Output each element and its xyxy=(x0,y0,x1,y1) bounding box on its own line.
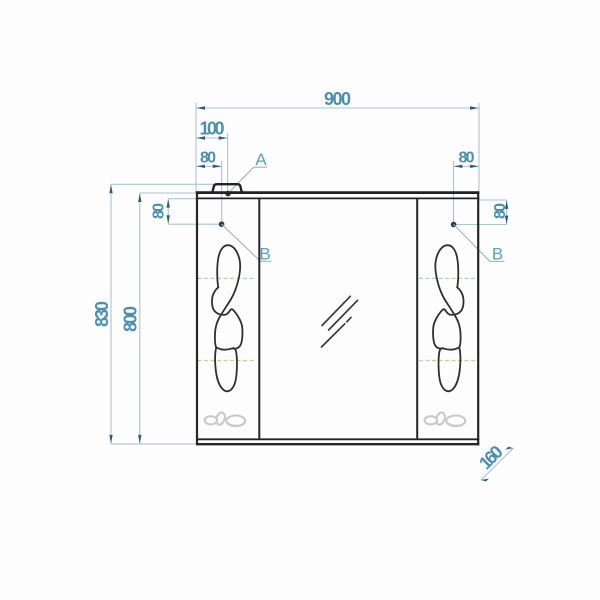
svg-text:80: 80 xyxy=(200,150,216,167)
svg-text:80: 80 xyxy=(492,203,509,219)
svg-text:A: A xyxy=(255,150,267,169)
svg-text:B: B xyxy=(259,245,270,264)
svg-text:830: 830 xyxy=(92,301,112,327)
svg-text:80: 80 xyxy=(459,150,475,167)
svg-text:100: 100 xyxy=(200,119,225,139)
svg-text:800: 800 xyxy=(121,306,141,332)
svg-text:B: B xyxy=(492,245,503,264)
svg-text:900: 900 xyxy=(324,89,351,109)
svg-text:80: 80 xyxy=(151,203,168,219)
